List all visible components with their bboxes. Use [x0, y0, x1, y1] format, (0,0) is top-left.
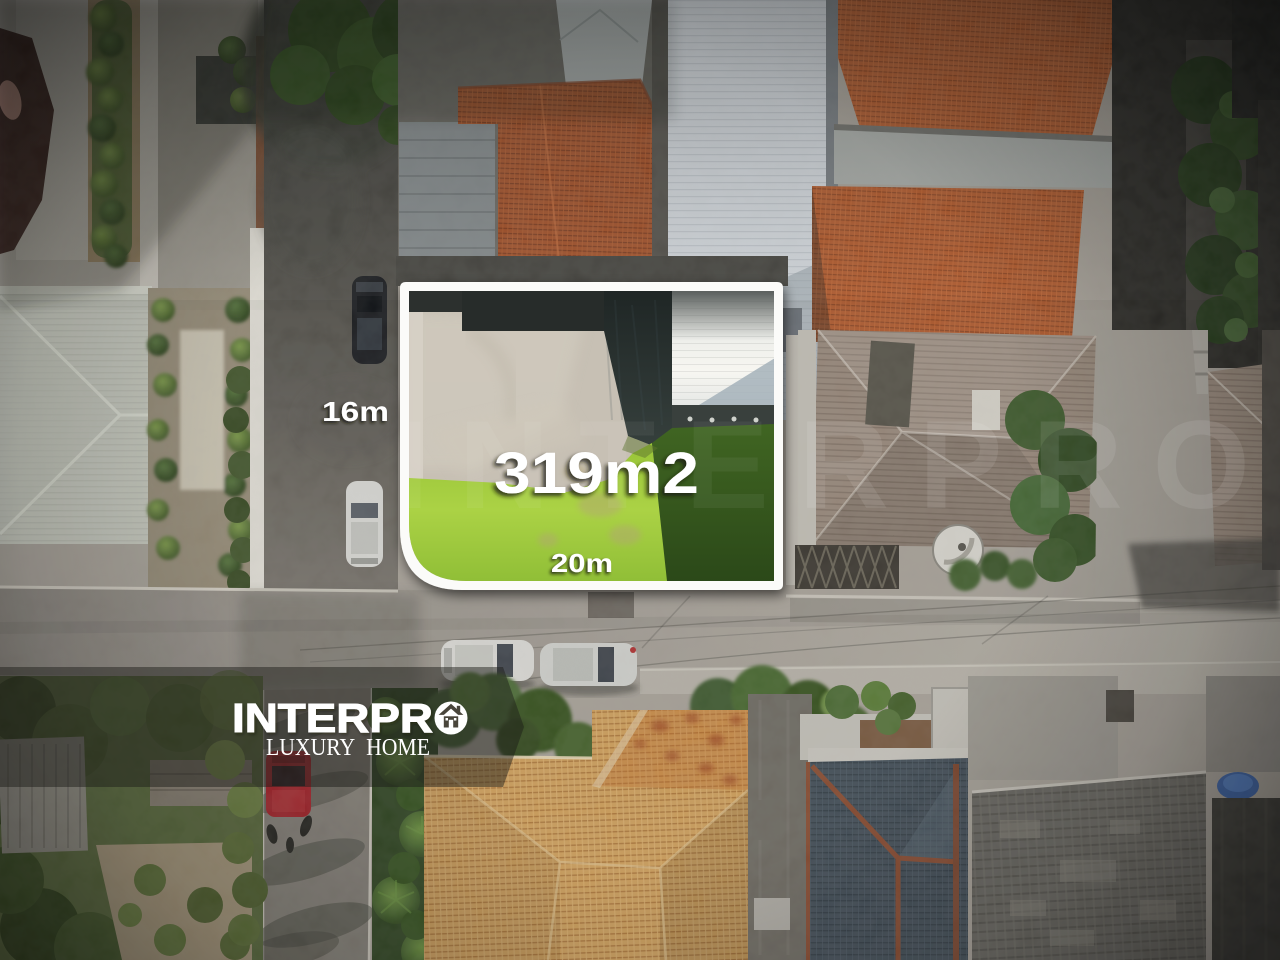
svg-text:LUXURY HOME: LUXURY HOME — [266, 735, 430, 761]
svg-text:16m: 16m — [322, 396, 389, 427]
svg-text:20m: 20m — [551, 548, 613, 578]
svg-text:319m2: 319m2 — [494, 441, 699, 506]
